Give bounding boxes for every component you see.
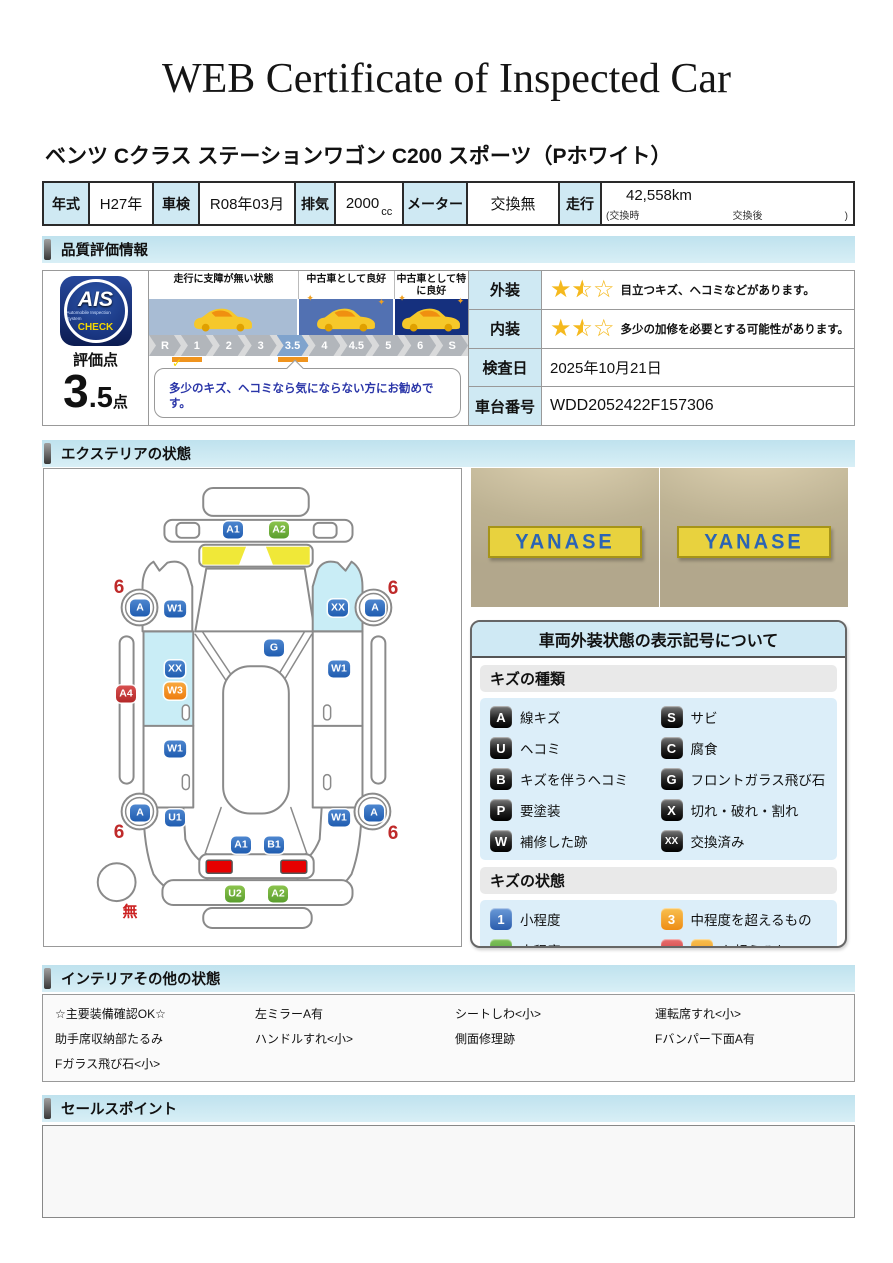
section-title: 品質評価情報	[61, 239, 148, 260]
ais-logo-inner: AIS Automobile Inspection System ✓CHECK	[64, 279, 128, 343]
damage-marker: A4	[116, 686, 136, 703]
symbol-badge: S	[661, 706, 683, 728]
damage-marker: A2	[268, 886, 288, 903]
vin-label: 車台番号	[469, 387, 542, 425]
legend-item: Gフロントガラス飛び石	[661, 768, 828, 790]
zone-good: 中古車として良好 ✦ ✦	[299, 271, 395, 335]
spec-meter-value: 交換無	[468, 183, 560, 224]
ais-subtitle: Automobile Inspection System	[67, 310, 125, 323]
scale-step: 1	[181, 335, 213, 356]
ais-check-label: ✓CHECK	[78, 322, 114, 333]
score-unit: 点	[113, 396, 128, 410]
legend-item: Uヘコミ	[490, 737, 657, 759]
interior-note: シートしわ<小>	[455, 1005, 655, 1022]
section-accent-bar-icon	[44, 239, 51, 260]
symbol-badge: U	[490, 737, 512, 759]
interior-notes-col-4: 運転席すれ<小> Fバンパー下面A有	[655, 1005, 854, 1080]
rating-comment: 目立つキズ、ヘコミなどがあります。	[621, 282, 815, 298]
section-header-quality: 品質評価情報	[42, 236, 855, 263]
car-silhouette-icon	[400, 305, 462, 332]
legend-title: 車両外装状態の表示記号について	[472, 622, 845, 658]
displacement-unit: cc	[381, 206, 392, 218]
interior-note: 運転席すれ<小>	[655, 1005, 854, 1022]
symbol-badge: G	[661, 768, 683, 790]
damage-marker: U1	[165, 810, 185, 827]
car-topview-drawing	[44, 469, 461, 946]
legend-states-panel: 1小程度 3中程度を超えるもの 2中程度 43を超えるもの	[480, 900, 837, 948]
rating-label: 外装	[469, 271, 542, 309]
car-silhouette-icon	[192, 305, 254, 332]
page-title: WEB Certificate of Inspected Car	[0, 55, 893, 103]
car-silhouette-icon	[315, 305, 377, 332]
sparkle-icon: ✦	[398, 293, 406, 304]
legend-kinds-panel: A線キズ Sサビ Uヘコミ C腐食 Bキズを伴うヘコミ Gフロントガラス飛び石 …	[480, 698, 837, 860]
ais-brand: AIS	[78, 289, 113, 310]
damage-marker: A1	[231, 837, 251, 854]
interior-note: ☆主要装備確認OK☆	[55, 1005, 255, 1022]
certificate-page: WEB Certificate of Inspected Car ベンツ Cクラ…	[0, 0, 893, 1263]
interior-notes-col-2: 左ミラーA有 ハンドルすれ<小>	[255, 1005, 455, 1080]
zone-band: ✦ ✦	[299, 299, 395, 335]
damage-marker: W1	[328, 661, 350, 678]
photo-left: YANASE	[471, 468, 659, 607]
legend-kinds-title: キズの種類	[480, 665, 837, 692]
interior-notes-col-3: シートしわ<小> 側面修理跡	[455, 1005, 655, 1080]
wheel-note: 6	[388, 823, 399, 845]
damage-marker: W3	[164, 683, 186, 700]
symbol-badge: P	[490, 799, 512, 821]
damage-marker: XX	[328, 600, 348, 617]
star-empty-icon	[593, 278, 615, 302]
star-empty-icon	[593, 317, 615, 341]
symbol-badge: X	[661, 799, 683, 821]
damage-marker: G	[264, 640, 284, 657]
legend-item: Sサビ	[661, 706, 828, 728]
legend-item: W補修した跡	[490, 830, 657, 852]
legend-item: X切れ・破れ・割れ	[661, 799, 828, 821]
rating-value: 多少の加修を必要とする可能性があります。	[542, 310, 854, 348]
section-title: セールスポイント	[61, 1098, 177, 1119]
section-title: インテリアその他の状態	[61, 968, 221, 989]
damage-marker: W1	[328, 810, 350, 827]
damage-marker: U2	[225, 886, 245, 903]
rating-table: 外装 目立つキズ、ヘコミなどがあります。 内装 多少の加修を必要とする可能性があ…	[469, 271, 854, 425]
rating-row-interior: 内装 多少の加修を必要とする可能性があります。	[469, 310, 854, 349]
symbol-badge: W	[490, 830, 512, 852]
spare-tire-note: 無	[122, 901, 137, 922]
condition-zones: 走行に支障が無い状態 中古車として良好 ✦ ✦ 中古車として特に良好	[149, 271, 468, 335]
damage-marker: W1	[164, 741, 186, 758]
symbol-badge: XX	[661, 830, 683, 852]
legend-item: Bキズを伴うヘコミ	[490, 768, 657, 790]
ais-score-panel: AIS Automobile Inspection System ✓CHECK …	[43, 271, 149, 425]
spec-displacement-label: 排気	[296, 183, 336, 224]
vin-row: 車台番号 WDD2052422F157306	[469, 387, 854, 425]
legend-states-title: キズの状態	[480, 867, 837, 894]
level-badge: 2	[490, 939, 512, 948]
scale-step: 4.5	[340, 335, 372, 356]
damage-marker: A	[364, 805, 384, 822]
score-decimal: .5	[89, 385, 113, 411]
interior-note: 助手席収納部たるみ	[55, 1030, 255, 1047]
damage-marker: A2	[269, 522, 289, 539]
symbol-badge: B	[490, 768, 512, 790]
rating-label: 内装	[469, 310, 542, 348]
inspection-date-value: 2025年10月21日	[542, 349, 854, 387]
rating-row-exterior: 外装 目立つキズ、ヘコミなどがあります。	[469, 271, 854, 310]
damage-marker: A	[130, 805, 150, 822]
mileage-sub-exchange-at: (交換時	[606, 207, 639, 222]
section-header-interior: インテリアその他の状態	[42, 965, 855, 992]
interior-notes-box: ☆主要装備確認OK☆ 助手席収納部たるみ Fガラス飛び石<小> 左ミラーA有 ハ…	[42, 994, 855, 1082]
zone-label: 走行に支障が無い状態	[149, 271, 299, 299]
rating-comment: 多少の加修を必要とする可能性があります。	[621, 321, 850, 337]
damage-marker: A	[130, 600, 150, 617]
spec-displacement-value: 2000cc	[336, 183, 404, 224]
section-title: エクステリアの状態	[61, 443, 191, 464]
symbol-badge: A	[490, 706, 512, 728]
damage-symbol-legend: 車両外装状態の表示記号について キズの種類 A線キズ Sサビ Uヘコミ C腐食 …	[470, 620, 847, 948]
scale-step: 4	[309, 335, 341, 356]
legend-item: 1小程度	[490, 908, 657, 930]
mileage-sub-paren: )	[845, 211, 848, 222]
car-name: ベンツ Cクラス ステーションワゴン C200 スポーツ（Pホワイト）	[45, 140, 671, 170]
star-half-icon	[572, 278, 594, 302]
symbol-badge: C	[661, 737, 683, 759]
scale-step-active: 3.5	[277, 335, 309, 356]
spec-shaken-value: R08年03月	[200, 183, 296, 224]
ais-logo-icon: AIS Automobile Inspection System ✓CHECK	[60, 276, 132, 346]
star-full-icon	[550, 317, 572, 341]
comment-bubble: 多少のキズ、ヘコミなら気にならない方にお勧めです。	[154, 368, 461, 418]
section-header-exterior: エクステリアの状態	[42, 440, 855, 467]
score-scale: R 1 2 3 3.5 4 4.5 5 6 S	[149, 335, 468, 356]
inspection-date-row: 検査日 2025年10月21日	[469, 349, 854, 388]
photo-right: YANASE	[660, 468, 848, 607]
level-badge: 3	[661, 908, 683, 930]
interior-note: 側面修理跡	[455, 1030, 655, 1047]
section-accent-bar-icon	[44, 968, 51, 989]
spec-mileage-value: 42,558km (交換時 交換後 )	[602, 183, 853, 224]
zone-band: ✦ ✦	[395, 299, 468, 335]
score-comment: 多少のキズ、ヘコミなら気にならない方にお勧めです。	[155, 369, 460, 412]
zone-drivable: 走行に支障が無い状態	[149, 271, 299, 335]
score-integer: 3	[63, 371, 89, 412]
legend-item: P要塗装	[490, 799, 657, 821]
displacement-number: 2000	[346, 195, 379, 212]
star-half-icon	[572, 317, 594, 341]
legend-item: C腐食	[661, 737, 828, 759]
sparkle-icon: ✦	[378, 297, 386, 308]
legend-item: 2中程度	[490, 939, 657, 948]
damage-marker: B1	[264, 837, 284, 854]
inspection-date-label: 検査日	[469, 349, 542, 387]
interior-note: Fガラス飛び石<小>	[55, 1055, 255, 1072]
level-badge: 1	[490, 908, 512, 930]
legend-item: 3中程度を超えるもの	[661, 908, 828, 930]
scale-step: 6	[404, 335, 436, 356]
mileage-sub-exchange-after: 交換後	[733, 207, 763, 222]
quality-evaluation-box: AIS Automobile Inspection System ✓CHECK …	[42, 270, 855, 426]
scale-step: 5	[372, 335, 404, 356]
section-header-sales: セールスポイント	[42, 1095, 855, 1122]
spec-shaken-label: 車検	[154, 183, 200, 224]
wheel-note: 6	[114, 577, 125, 599]
spec-year-value: H27年	[90, 183, 154, 224]
wheel-note: 6	[114, 822, 125, 844]
zone-band	[149, 299, 299, 335]
interior-note: 左ミラーA有	[255, 1005, 455, 1022]
sparkle-icon: ✦	[306, 293, 314, 304]
interior-note: Fバンパー下面A有	[655, 1030, 854, 1047]
section-accent-bar-icon	[44, 1098, 51, 1119]
scale-step: S	[436, 335, 468, 356]
legend-item: A線キズ	[490, 706, 657, 728]
damage-marker: W1	[164, 601, 186, 618]
zone-excellent: 中古車として特に良好 ✦ ✦	[395, 271, 468, 335]
sales-point-box	[42, 1125, 855, 1218]
interior-notes-col-1: ☆主要装備確認OK☆ 助手席収納部たるみ Fガラス飛び石<小>	[55, 1005, 255, 1080]
legend-item: 43を超えるもの	[661, 939, 828, 948]
spec-table: 年式 H27年 車検 R08年03月 排気 2000cc メーター 交換無 走行…	[42, 181, 855, 226]
scale-step: R	[149, 335, 181, 356]
score-value: 3 .5 点	[63, 371, 128, 412]
exterior-damage-diagram: A1 A2 A W1 XX A G A4 XX W3 W1 W1 A U1 W1…	[43, 468, 462, 947]
inspection-photos: YANASE YANASE	[471, 468, 848, 607]
damage-marker: XX	[165, 661, 185, 678]
spec-year-label: 年式	[44, 183, 90, 224]
rating-value: 目立つキズ、ヘコミなどがあります。	[542, 271, 854, 309]
scale-step: 2	[213, 335, 245, 356]
interior-note: ハンドルすれ<小>	[255, 1030, 455, 1047]
damage-marker: A	[365, 600, 385, 617]
scale-step: 3	[245, 335, 277, 356]
yanase-sign: YANASE	[677, 526, 831, 558]
vin-value: WDD2052422F157306	[542, 387, 854, 425]
legend-item: XX交換済み	[661, 830, 828, 852]
level-badge: 4	[661, 939, 683, 948]
wheel-note: 6	[388, 578, 399, 600]
spec-meter-label: メーター	[404, 183, 468, 224]
score-scale-panel: 走行に支障が無い状態 中古車として良好 ✦ ✦ 中古車として特に良好	[149, 271, 469, 425]
spec-mileage-label: 走行	[560, 183, 602, 224]
star-full-icon	[550, 278, 572, 302]
level-badge: 3	[691, 939, 713, 948]
damage-marker: A1	[223, 522, 243, 539]
yanase-sign: YANASE	[488, 526, 642, 558]
mileage-number: 42,558km	[626, 187, 692, 204]
section-accent-bar-icon	[44, 443, 51, 464]
